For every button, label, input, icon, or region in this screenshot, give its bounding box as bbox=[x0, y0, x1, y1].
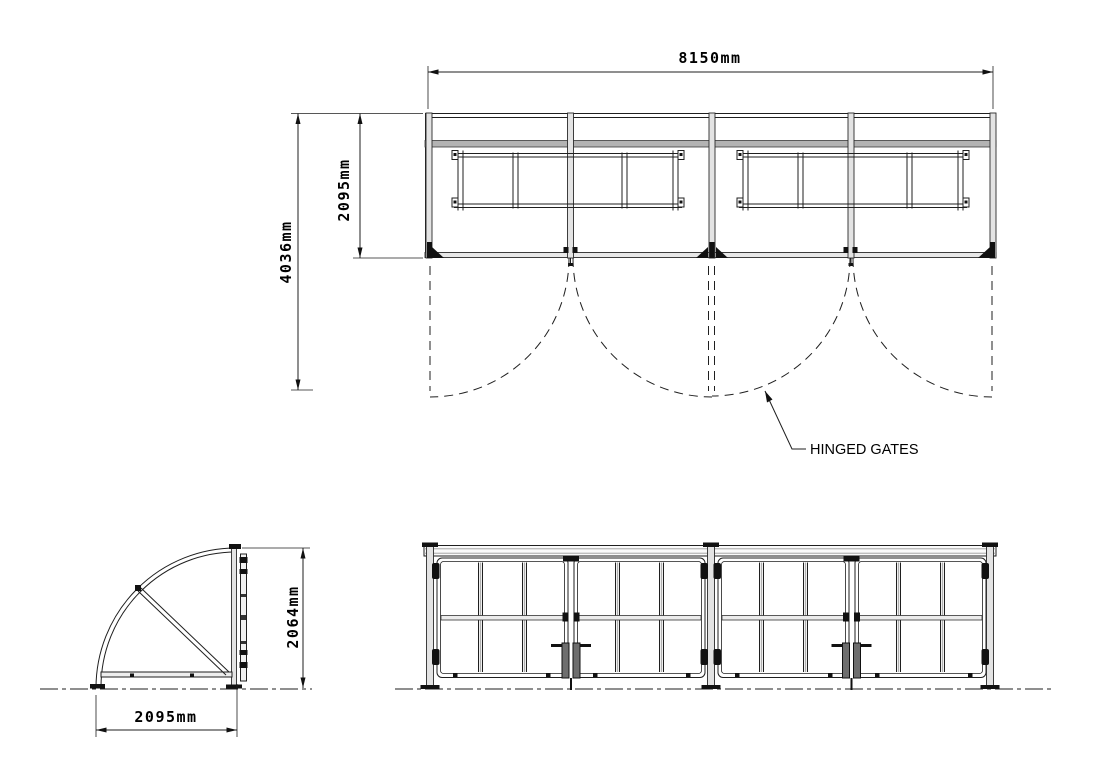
gate-hinge bbox=[701, 649, 709, 665]
plan-post bbox=[568, 113, 574, 258]
gate-hinge bbox=[714, 649, 722, 665]
dimension-side-height: 2064mm bbox=[242, 548, 310, 688]
front-post bbox=[708, 546, 715, 686]
plan-post bbox=[709, 113, 715, 258]
dimension-plan-shelter-depth: 2095mm bbox=[335, 114, 423, 259]
plan-hinge-marker bbox=[696, 242, 728, 258]
gate-hinge bbox=[982, 563, 990, 579]
dimension-plan-width: 8150mm bbox=[428, 49, 993, 109]
dimension-side-width: 2095mm bbox=[96, 684, 237, 737]
gate-hinge bbox=[714, 563, 722, 579]
gate-swing-arcs bbox=[430, 258, 992, 397]
front-elevation-view bbox=[395, 543, 1052, 691]
plan-post bbox=[848, 113, 854, 258]
dimension-text-side-height: 2064mm bbox=[284, 585, 302, 648]
gate-leaf bbox=[574, 558, 705, 678]
plan-post bbox=[990, 113, 996, 258]
dimension-text-plan-shelter-depth: 2095mm bbox=[335, 158, 353, 221]
gate-hinge bbox=[432, 563, 440, 579]
shelter-drawing-canvas: HINGED GATES 8150mm 4036mm 2095mm bbox=[0, 0, 1108, 778]
dimension-text-plan-width: 8150mm bbox=[678, 49, 741, 67]
side-post-cap bbox=[229, 544, 241, 549]
gate-hinge bbox=[432, 649, 440, 665]
gate-hinge bbox=[701, 563, 709, 579]
gate-leaf bbox=[855, 558, 986, 678]
side-foot-right bbox=[226, 685, 242, 689]
plan-posts bbox=[426, 113, 996, 258]
side-post bbox=[232, 548, 237, 685]
gate-leaf bbox=[437, 558, 568, 678]
leader-arrow-icon bbox=[765, 391, 773, 403]
gate-leaf bbox=[718, 558, 849, 678]
gate-hinge bbox=[982, 649, 990, 665]
dimension-text-side-width: 2095mm bbox=[134, 708, 197, 726]
dimension-text-plan-total-depth: 4036mm bbox=[277, 220, 295, 283]
side-diagonal-brace bbox=[135, 585, 229, 675]
side-base-rail bbox=[101, 672, 232, 677]
technical-drawing-page: HINGED GATES 8150mm 4036mm 2095mm bbox=[0, 0, 1108, 778]
hinged-gates-label: HINGED GATES bbox=[810, 442, 919, 458]
plan-view: HINGED GATES bbox=[425, 113, 996, 458]
plan-post bbox=[426, 113, 432, 258]
side-foot-left bbox=[90, 684, 105, 689]
side-elevation-view bbox=[40, 544, 312, 689]
side-gate-edge bbox=[240, 554, 248, 681]
hinged-gates-callout: HINGED GATES bbox=[765, 391, 919, 458]
dimension-plan-total-depth: 4036mm bbox=[277, 114, 423, 391]
